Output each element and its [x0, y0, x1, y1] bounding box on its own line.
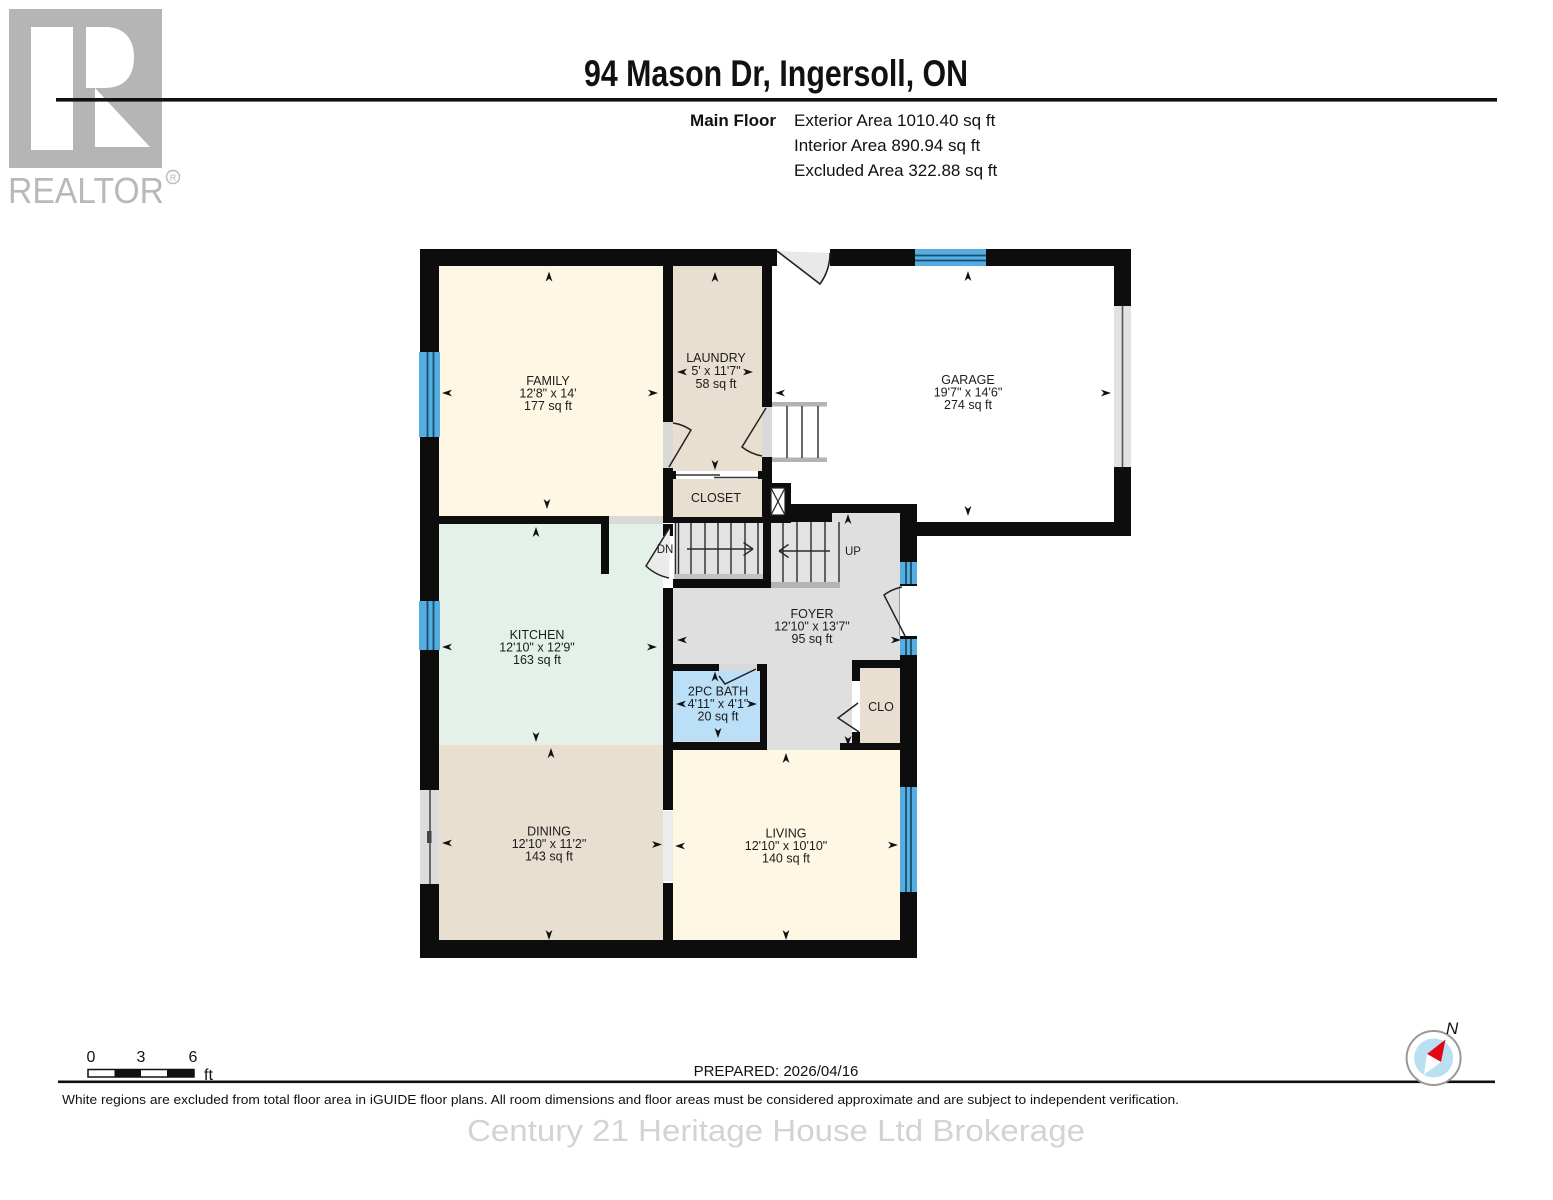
- svg-text:95 sq ft: 95 sq ft: [792, 632, 834, 646]
- svg-text:140 sq ft: 140 sq ft: [762, 852, 810, 866]
- svg-text:177 sq ft: 177 sq ft: [524, 399, 572, 413]
- svg-text:Main Floor: Main Floor: [690, 111, 776, 130]
- svg-text:PREPARED: 2026/04/16: PREPARED: 2026/04/16: [694, 1063, 859, 1080]
- svg-text:274 sq ft: 274 sq ft: [944, 398, 992, 412]
- svg-text:UP: UP: [845, 546, 861, 558]
- svg-text:20 sq ft: 20 sq ft: [698, 710, 740, 724]
- svg-text:163 sq ft: 163 sq ft: [513, 653, 561, 667]
- svg-text:REALTOR: REALTOR: [8, 170, 164, 211]
- svg-text:Century 21 Heritage House Ltd: Century 21 Heritage House Ltd Brokerage: [467, 1113, 1085, 1148]
- svg-text:R: R: [170, 173, 177, 183]
- svg-text:CLOSET: CLOSET: [691, 491, 741, 505]
- svg-text:Exterior Area 1010.40 sq ft: Exterior Area 1010.40 sq ft: [794, 111, 996, 130]
- svg-text:94 Mason Dr, Ingersoll, ON: 94 Mason Dr, Ingersoll, ON: [584, 53, 968, 94]
- svg-text:CLO: CLO: [868, 700, 894, 714]
- svg-text:143 sq ft: 143 sq ft: [525, 850, 573, 864]
- svg-text:White regions are excluded fro: White regions are excluded from total fl…: [62, 1092, 1179, 1107]
- svg-text:Excluded Area 322.88 sq ft: Excluded Area 322.88 sq ft: [794, 161, 997, 180]
- svg-text:DN: DN: [657, 544, 674, 556]
- svg-text:3: 3: [137, 1049, 146, 1066]
- svg-text:58 sq ft: 58 sq ft: [696, 377, 738, 391]
- svg-text:5' x 11'7": 5' x 11'7": [691, 364, 740, 378]
- svg-text:Interior Area 890.94 sq ft: Interior Area 890.94 sq ft: [794, 136, 980, 155]
- svg-text:6: 6: [189, 1049, 198, 1066]
- svg-text:0: 0: [87, 1049, 96, 1066]
- svg-text:LAUNDRY: LAUNDRY: [686, 351, 746, 365]
- svg-text:N: N: [1446, 1019, 1459, 1038]
